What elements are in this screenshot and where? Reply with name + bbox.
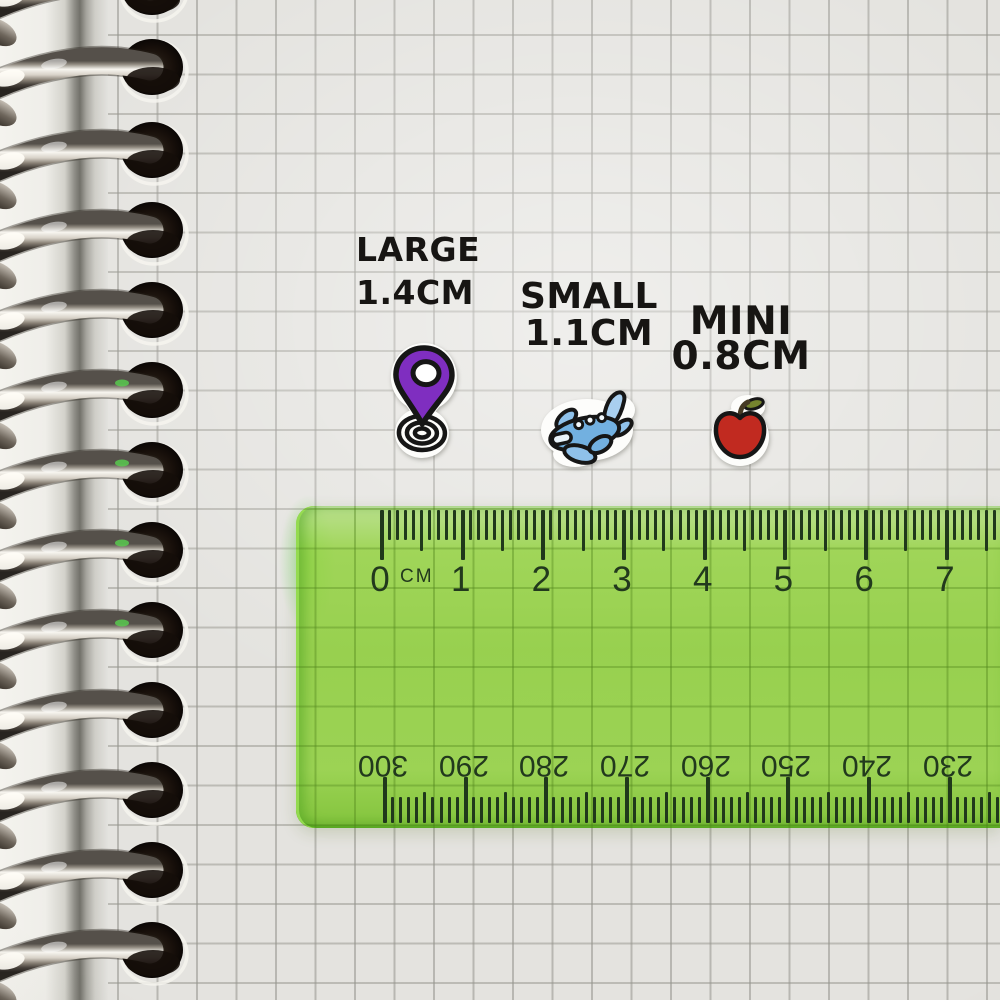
ruler-tick-cm: [544, 777, 548, 823]
ruler-tick-mm: [585, 792, 588, 823]
label-small-size: 1.1CM: [514, 315, 664, 352]
ruler-tick-mm: [404, 510, 407, 540]
ruler-tick-mm: [566, 510, 569, 540]
ruler-tick-cm: [622, 510, 626, 560]
ruler-tick-mm: [407, 797, 410, 823]
ruler-tick-mm: [687, 510, 690, 540]
ruler-tick-mm: [762, 797, 765, 823]
ruler-tick-mm: [751, 510, 754, 540]
ruler-tick-mm: [907, 792, 910, 823]
ruler-tick-mm: [743, 510, 746, 551]
ruler-tick-mm: [617, 797, 620, 823]
ruler-tick-mm: [649, 797, 652, 823]
ruler-tick-cm: [703, 510, 707, 560]
ruler-number-bottom: 250: [761, 748, 811, 782]
ruler-tick-mm: [431, 797, 434, 823]
ruler-tick-mm: [496, 797, 499, 823]
ruler-tick-mm: [606, 510, 609, 540]
binding-coil-stub: [0, 255, 21, 295]
ruler-tick-mm: [504, 792, 507, 823]
ruler-tick-mm: [996, 797, 999, 823]
ruler-tick-mm: [840, 510, 843, 540]
binding-ring: [0, 202, 187, 295]
ruler-number-bottom: 290: [439, 748, 489, 782]
binding-coil-stub: [0, 655, 21, 695]
ruler-tick-mm: [517, 510, 520, 540]
ruler-tick-mm: [775, 510, 778, 540]
ruler-tick-mm: [730, 797, 733, 823]
location-pin-sticker: [384, 340, 462, 464]
ruler-tick-mm: [391, 797, 394, 823]
ruler-tick-mm: [662, 510, 665, 551]
ruler-tick-mm: [972, 797, 975, 823]
ruler-tick-mm: [646, 510, 649, 540]
ruler-tick-mm: [593, 797, 596, 823]
ruler-tick-mm: [396, 510, 399, 540]
ruler-number-bottom: 240: [842, 748, 892, 782]
ruler-tick-mm: [437, 510, 440, 540]
ruler-tick-mm: [509, 510, 512, 540]
ruler-tick-mm: [552, 797, 555, 823]
ruler-tick-mm: [795, 797, 798, 823]
ruler-number-top: 7: [935, 560, 954, 600]
ruler-tick-mm: [746, 792, 749, 823]
ruler-tick-mm: [872, 510, 875, 540]
photo-scene: LARGE 1.4CM SMALL 1.1CM MINI 0.8CM: [0, 0, 1000, 1000]
ruler-number-bottom: 300: [358, 748, 408, 782]
ruler-tick-mm: [727, 510, 730, 540]
ruler-tick-mm: [816, 510, 819, 540]
ruler-tick-mm: [988, 792, 991, 823]
binding-coil-stub: [0, 735, 21, 775]
ruler-tick-cm: [864, 510, 868, 560]
ruler-tick-mm: [657, 797, 660, 823]
ruler-tick-mm: [851, 797, 854, 823]
ruler-tick-mm: [399, 797, 402, 823]
label-small: SMALL 1.1CM: [514, 278, 664, 352]
ruler-tick-mm: [759, 510, 762, 540]
ruler-tick-mm: [916, 797, 919, 823]
ruler-tick-mm: [896, 510, 899, 540]
label-small-name: SMALL: [514, 278, 664, 315]
ruler-tick-mm: [472, 797, 475, 823]
ruler-tick-mm: [536, 797, 539, 823]
binding-coil-stub: [0, 415, 21, 455]
ruler-number-top: 2: [532, 560, 551, 600]
ruler-tick-mm: [665, 792, 668, 823]
ruler-tick-mm: [819, 797, 822, 823]
ruler-tick-mm: [415, 797, 418, 823]
ruler-tick-mm: [924, 797, 927, 823]
ruler-tick-cm: [945, 510, 949, 560]
ruler-tick-mm: [428, 510, 431, 540]
ruler-tick-mm: [875, 797, 878, 823]
ruler-tick-mm: [792, 510, 795, 540]
ruler-tick-mm: [630, 510, 633, 540]
ruler-tick-mm: [980, 797, 983, 823]
ruler-number-bottom: 280: [519, 748, 569, 782]
ruler-tick-mm: [638, 510, 641, 540]
ruler-tick-mm: [835, 797, 838, 823]
ruler-tick-mm: [601, 797, 604, 823]
ruler-tick-mm: [932, 797, 935, 823]
ruler-tick-mm: [848, 510, 851, 540]
binding-ring: [0, 362, 187, 455]
ruler-tick-mm: [690, 797, 693, 823]
ruler-unit-label: CM: [400, 566, 434, 588]
ruler-tick-mm: [477, 510, 480, 540]
binding-coil-stub: [0, 92, 21, 132]
binding-coil-stub: [0, 495, 21, 535]
label-mini: MINI 0.8CM: [666, 304, 816, 374]
ruler-tick-mm: [985, 510, 988, 551]
ruler-tick-mm: [714, 797, 717, 823]
ruler-tick-mm: [609, 797, 612, 823]
ruler-number-top: 0: [370, 560, 389, 600]
ruler-tick-cm: [783, 510, 787, 560]
ruler-tick-mm: [961, 510, 964, 540]
ruler-tick-mm: [682, 797, 685, 823]
apple-sticker: [703, 393, 777, 467]
ruler-tick-mm: [754, 797, 757, 823]
ruler-tick-mm: [738, 797, 741, 823]
ruler-tick-mm: [891, 797, 894, 823]
binding-ring: [0, 522, 187, 615]
label-large: LARGE 1.4CM: [356, 228, 506, 314]
ruler-tick-mm: [904, 510, 907, 551]
binding-ring: [0, 922, 187, 1000]
airplane-sticker: [539, 390, 637, 470]
ruler-tick-mm: [525, 510, 528, 540]
ruler-tick-mm: [711, 510, 714, 540]
label-large-name: LARGE: [356, 228, 506, 271]
ruler-tick-mm: [770, 797, 773, 823]
ruler-tick-mm: [695, 510, 698, 540]
ruler-tick-mm: [673, 797, 676, 823]
binding-ring: [0, 762, 187, 855]
ruler-tick-mm: [448, 797, 451, 823]
ruler-tick-mm: [574, 510, 577, 540]
ruler-tick-cm: [625, 777, 629, 823]
ruler-tick-mm: [767, 510, 770, 540]
binding-ring: [0, 682, 187, 775]
ruler-tick-mm: [856, 510, 859, 540]
ruler-tick-cm: [706, 777, 710, 823]
ruler-tick-cm: [461, 510, 465, 560]
ruler-number-top: 5: [774, 560, 793, 600]
ruler-tick-mm: [633, 797, 636, 823]
label-large-size: 1.4CM: [356, 271, 506, 314]
ruler-tick-mm: [590, 510, 593, 540]
ruler-tick-mm: [388, 510, 391, 540]
ruler-tick-mm: [953, 510, 956, 540]
ruler-tick-mm: [679, 510, 682, 540]
ruler-tick-mm: [888, 510, 891, 540]
ruler-tick-cm: [464, 777, 468, 823]
ruler-tick-mm: [735, 510, 738, 540]
ruler-tick-mm: [803, 797, 806, 823]
ruler-tick-mm: [670, 510, 673, 540]
ruler-tick-mm: [811, 797, 814, 823]
spiral-binding: [0, 0, 240, 1000]
ruler-tick-mm: [956, 797, 959, 823]
binding-ring: [0, 39, 187, 132]
ruler-tick-mm: [921, 510, 924, 540]
ruler-tick-mm: [614, 510, 617, 540]
ruler-tick-mm: [485, 510, 488, 540]
ruler-tick-mm: [913, 510, 916, 540]
binding-coil-stub: [0, 815, 21, 855]
ruler-number-top: 4: [693, 560, 712, 600]
ruler-tick-mm: [561, 797, 564, 823]
ruler: 01234567 CM 300290280270260250240230: [296, 506, 1000, 828]
ruler-tick-mm: [423, 792, 426, 823]
ruler-tick-mm: [420, 510, 423, 551]
ruler-tick-mm: [899, 797, 902, 823]
ruler-tick-mm: [993, 510, 996, 540]
ruler-tick-mm: [698, 797, 701, 823]
ruler-number-bottom: 270: [600, 748, 650, 782]
ruler-tick-mm: [977, 510, 980, 540]
ruler-tick-mm: [880, 510, 883, 540]
ruler-tick-cm: [867, 777, 871, 823]
ruler-tick-mm: [412, 510, 415, 540]
binding-coil-stub: [0, 175, 21, 215]
ruler-tick-mm: [654, 510, 657, 540]
ruler-tick-mm: [558, 510, 561, 540]
binding-ring: [0, 282, 187, 375]
ruler-tick-mm: [722, 797, 725, 823]
ruler-tick-mm: [453, 510, 456, 540]
ruler-tick-mm: [929, 510, 932, 540]
ruler-tick-mm: [598, 510, 601, 540]
ruler-tick-mm: [488, 797, 491, 823]
ruler-number-bottom: 260: [681, 748, 731, 782]
ruler-tick-mm: [569, 797, 572, 823]
ruler-number-top: 3: [612, 560, 631, 600]
ruler-tick-cm: [380, 510, 384, 560]
ruler-tick-mm: [808, 510, 811, 540]
ruler-tick-mm: [577, 797, 580, 823]
ruler-number-bottom: 230: [923, 748, 973, 782]
ruler-number-top: 1: [451, 560, 470, 600]
ruler-tick-mm: [843, 797, 846, 823]
ruler-tick-mm: [827, 792, 830, 823]
ruler-tick-cm: [541, 510, 545, 560]
ruler-tick-mm: [456, 797, 459, 823]
ruler-tick-cm: [383, 777, 387, 823]
binding-coil-stub: [0, 335, 21, 375]
ruler-tick-mm: [445, 510, 448, 540]
ruler-tick-cm: [786, 777, 790, 823]
binding-ring: [0, 602, 187, 695]
binding-coil-stub: [0, 575, 21, 615]
ruler-tick-mm: [501, 510, 504, 551]
ruler-tick-mm: [582, 510, 585, 551]
ruler-tick-mm: [469, 510, 472, 540]
ruler-tick-mm: [641, 797, 644, 823]
ruler-tick-mm: [778, 797, 781, 823]
ruler-tick-mm: [824, 510, 827, 551]
ruler-tick-mm: [719, 510, 722, 540]
ruler-tick-mm: [937, 510, 940, 540]
binding-coil-stub: [0, 895, 21, 935]
ruler-tick-mm: [480, 797, 483, 823]
ruler-tick-mm: [800, 510, 803, 540]
ruler-tick-mm: [549, 510, 552, 540]
ruler-number-top: 6: [854, 560, 873, 600]
ruler-tick-mm: [533, 510, 536, 540]
binding-ring: [0, 842, 187, 935]
ruler-tick-mm: [832, 510, 835, 540]
ruler-tick-mm: [528, 797, 531, 823]
ruler-tick-mm: [883, 797, 886, 823]
ruler-tick-mm: [493, 510, 496, 540]
ruler-tick-mm: [940, 797, 943, 823]
label-mini-size: 0.8CM: [666, 339, 816, 374]
ruler-tick-mm: [969, 510, 972, 540]
ruler-tick-mm: [964, 797, 967, 823]
ruler-tick-mm: [520, 797, 523, 823]
binding-ring: [0, 122, 187, 215]
binding-coil-stub: [0, 12, 21, 52]
binding-ring: [0, 442, 187, 535]
ruler-tick-mm: [512, 797, 515, 823]
ruler-tick-mm: [859, 797, 862, 823]
ruler-tick-cm: [948, 777, 952, 823]
ruler-tick-mm: [440, 797, 443, 823]
